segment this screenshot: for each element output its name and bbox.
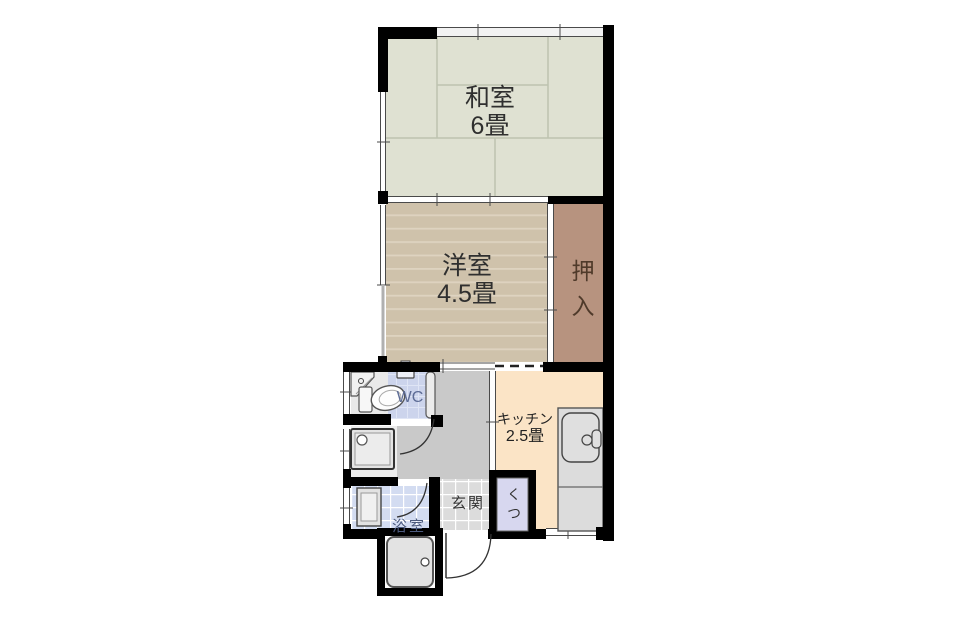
- kitchen-size: 2.5畳: [506, 428, 544, 445]
- shoebox-name: くつ: [506, 487, 522, 525]
- washitsu-label: 和室 6畳: [400, 84, 580, 140]
- bathroom-name: 浴室: [392, 518, 426, 535]
- wc-label: WC: [392, 389, 428, 407]
- bathroom-label: 浴室: [381, 515, 437, 536]
- laundry-pan-icon: [351, 429, 394, 469]
- entrance-door-arc: [446, 534, 491, 578]
- kitchen-label: キッチン 2.5畳: [489, 411, 561, 445]
- youshitsu-size: 4.5畳: [437, 280, 497, 308]
- oshiire-label: 押入: [562, 244, 598, 344]
- hallway-floor-lower: [397, 426, 490, 479]
- youshitsu-label: 洋室 4.5畳: [386, 252, 548, 308]
- washitsu-name: 和室: [465, 84, 515, 112]
- youshitsu-name: 洋室: [442, 252, 492, 280]
- kitchen-counter: [558, 408, 603, 531]
- genkan-label: 玄関: [442, 492, 494, 513]
- bath-sink-icon: [357, 488, 381, 526]
- wc-name: WC: [397, 389, 424, 406]
- oshiire-name: 押入: [568, 259, 594, 329]
- washitsu-size: 6畳: [471, 112, 510, 140]
- kitchen-name: キッチン: [497, 411, 553, 427]
- genkan-name: 玄関: [451, 495, 485, 512]
- shoebox-label: くつ: [502, 483, 524, 529]
